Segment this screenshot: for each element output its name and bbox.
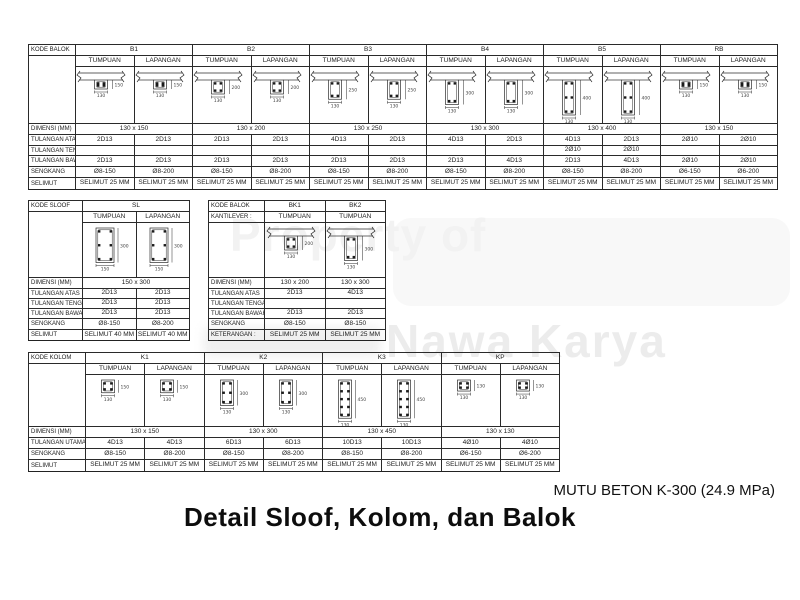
value-cell (265, 299, 326, 309)
dimensi-value: 130 x 150 (76, 124, 193, 135)
code-header: B1 (76, 45, 193, 56)
section-diagram-cell: 130150 (719, 67, 778, 124)
svg-text:200: 200 (232, 85, 241, 91)
svg-text:300: 300 (466, 90, 475, 96)
position-header: LAPANGAN (251, 56, 310, 67)
row-label: KETERANGAN : (209, 330, 265, 341)
position-header: TUMPUAN (323, 364, 382, 375)
value-cell: 4D13 (485, 156, 544, 167)
code-header: B4 (427, 45, 544, 56)
value-cell: 2D13 (134, 135, 193, 146)
value-cell: SELIMUT 40 MM (136, 330, 190, 341)
value-cell: SELIMUT 25 MM (134, 178, 193, 190)
svg-text:130: 130 (104, 396, 113, 402)
section-diagram-cell: 130130 (500, 375, 559, 427)
table-code-label: KODE KOLOM (29, 353, 86, 364)
mutu-beton-note: MUTU BETON K-300 (24.9 MPa) (554, 482, 775, 499)
value-cell: Ø6-150 (661, 167, 720, 178)
value-cell: Ø8-200 (485, 167, 544, 178)
svg-text:130: 130 (682, 93, 691, 99)
value-cell: 2D13 (485, 135, 544, 146)
value-cell: SELIMUT 25 MM (310, 178, 369, 190)
value-cell: SELIMUT 25 MM (323, 460, 382, 472)
value-cell (427, 146, 486, 156)
value-cell: Ø8-150 (544, 167, 603, 178)
row-label: TULANGAN BAWAH (29, 309, 83, 319)
dimensi-value: 130 x 130 (441, 427, 560, 438)
rect-section-diagram: 130450 (323, 376, 381, 426)
row-label: TULANGAN TENGAH (209, 299, 265, 309)
svg-text:300: 300 (120, 243, 129, 249)
svg-text:130: 130 (286, 254, 295, 260)
drawing-title: Detail Sloof, Kolom, dan Balok (0, 502, 760, 533)
position-header: TUMPUAN (204, 364, 263, 375)
section-diagram-cell: 130400 (602, 67, 661, 124)
value-cell (661, 146, 720, 156)
value-cell (134, 146, 193, 156)
position-header: LAPANGAN (136, 212, 190, 223)
svg-text:130: 130 (400, 422, 409, 426)
rect-section-diagram: 130130 (442, 376, 500, 426)
row-label: SENGKANG (209, 319, 265, 330)
empty-label-cell (29, 212, 83, 278)
position-header: TUMPUAN (441, 364, 500, 375)
position-header: TUMPUAN (427, 56, 486, 67)
value-cell: 2D13 (136, 309, 190, 319)
table-code-label: KODE SLOOF (29, 201, 83, 212)
section-diagram-cell: 130200 (193, 67, 252, 124)
rect-section-diagram: 130300 (264, 376, 322, 426)
svg-text:130: 130 (389, 103, 398, 109)
position-header: TUMPUAN (661, 56, 720, 67)
value-cell: SELIMUT 25 MM (602, 178, 661, 190)
row-label: TULANGAN BAWAH (209, 309, 265, 319)
value-cell: SELIMUT 25 MM (441, 460, 500, 472)
value-cell (310, 146, 369, 156)
value-cell: 4Ø10 (441, 438, 500, 449)
value-cell: SELIMUT 25 MM (368, 178, 427, 190)
code-header: SL (83, 201, 190, 212)
value-cell: 2D13 (544, 156, 603, 167)
value-cell: 4Ø10 (500, 438, 559, 449)
svg-text:300: 300 (174, 243, 183, 249)
row-label: SELIMUT (29, 460, 86, 472)
svg-text:130: 130 (222, 409, 231, 415)
svg-text:130: 130 (535, 383, 544, 389)
svg-text:300: 300 (239, 390, 248, 396)
svg-text:130: 130 (459, 395, 468, 401)
value-cell: SELIMUT 25 MM (544, 178, 603, 190)
dimensi-value: 130 x 300 (204, 427, 323, 438)
row-label: SENGKANG (29, 167, 76, 178)
position-header: TUMPUAN (83, 212, 137, 223)
row-label: TULANGAN BAWAH (29, 156, 76, 167)
dimensi-value: 130 x 250 (310, 124, 427, 135)
value-cell: 2Ø10 (661, 156, 720, 167)
svg-text:130: 130 (272, 98, 281, 104)
position-header: LAPANGAN (145, 364, 204, 375)
svg-text:150: 150 (758, 82, 767, 88)
beam-section-diagram: 130250 (310, 68, 368, 123)
value-cell: Ø6-200 (719, 167, 778, 178)
value-cell: 4D13 (427, 135, 486, 146)
section-diagram-cell: 150300 (136, 223, 190, 278)
beam-section-diagram: 130300 (326, 224, 384, 277)
value-cell: SELIMUT 25 MM (86, 460, 145, 472)
section-diagram-cell: 130200 (265, 223, 326, 278)
rect-section-diagram: 150300 (83, 224, 136, 277)
svg-text:130: 130 (740, 93, 749, 99)
rect-section-diagram: 150300 (137, 224, 190, 277)
value-cell: 4D13 (602, 156, 661, 167)
value-cell: Ø8-150 (427, 167, 486, 178)
table-code-label: KODE BALOK (209, 201, 265, 212)
value-cell: SELIMUT 25 MM (265, 330, 326, 341)
sloof-grid: KODE SLOOFSLTUMPUANLAPANGAN150300150300D… (28, 200, 190, 341)
value-cell: 2D13 (265, 289, 326, 299)
value-cell: SELIMUT 25 MM (661, 178, 720, 190)
value-cell: 10D13 (323, 438, 382, 449)
beam-section-diagram: 130150 (135, 68, 193, 123)
value-cell: 10D13 (382, 438, 441, 449)
value-cell: Ø8-200 (602, 167, 661, 178)
dimensi-value: 130 x 200 (193, 124, 310, 135)
beam-section-diagram: 130400 (544, 68, 602, 123)
section-diagram-cell: 130130 (441, 375, 500, 427)
code-header: B2 (193, 45, 310, 56)
value-cell: Ø8-200 (134, 167, 193, 178)
svg-text:200: 200 (304, 241, 313, 247)
code-header: B5 (544, 45, 661, 56)
beam-section-diagram: 130200 (266, 224, 324, 277)
position-header: LAPANGAN (382, 364, 441, 375)
value-cell: 2D13 (265, 309, 326, 319)
svg-text:250: 250 (407, 87, 416, 93)
value-cell: Ø8-150 (193, 167, 252, 178)
value-cell: Ø8-200 (251, 167, 310, 178)
value-cell: 2D13 (251, 156, 310, 167)
section-diagram-cell: 130250 (368, 67, 427, 124)
section-diagram-cell: 130300 (325, 223, 386, 278)
svg-text:400: 400 (583, 95, 592, 101)
dimensi-value: 130 x 300 (427, 124, 544, 135)
row-label: SELIMUT (29, 330, 83, 341)
row-label: TULANGAN ATAS (29, 289, 83, 299)
value-cell: SELIMUT 25 MM (76, 178, 135, 190)
svg-text:130: 130 (623, 119, 632, 123)
svg-text:130: 130 (448, 108, 457, 114)
svg-text:130: 130 (282, 409, 291, 415)
table-code-label: KODE BALOK (29, 45, 76, 56)
section-diagram-cell: 130150 (145, 375, 204, 427)
sloof-table: KODE SLOOFSLTUMPUANLAPANGAN150300150300D… (28, 200, 190, 340)
dimensi-label: DIMENSI (MM) (29, 278, 83, 289)
svg-text:150: 150 (180, 384, 189, 390)
table-code-sublabel: KANTILEVER : (209, 212, 265, 223)
value-cell: Ø8-150 (310, 167, 369, 178)
position-header: TUMPUAN (193, 56, 252, 67)
value-cell: 2D13 (76, 135, 135, 146)
rect-section-diagram: 130450 (382, 376, 440, 426)
position-header: LAPANGAN (485, 56, 544, 67)
value-cell: 2Ø10 (719, 135, 778, 146)
dimensi-value: 130 x 300 (325, 278, 386, 289)
value-cell: Ø8-200 (368, 167, 427, 178)
section-diagram-cell: 130300 (485, 67, 544, 124)
dimensi-label: DIMENSI (MM) (29, 427, 86, 438)
row-label: TULANGAN UTAMA (29, 438, 86, 449)
svg-text:130: 130 (97, 93, 106, 99)
beam-section-diagram: 130150 (76, 68, 134, 123)
value-cell: SELIMUT 25 MM (325, 330, 386, 341)
dimensi-label: DIMENSI (MM) (29, 124, 76, 135)
svg-text:150: 150 (101, 266, 110, 272)
value-cell: 2Ø10 (544, 146, 603, 156)
value-cell (251, 146, 310, 156)
section-diagram-cell: 130150 (661, 67, 720, 124)
svg-text:450: 450 (417, 397, 426, 403)
position-header: TUMPUAN (544, 56, 603, 67)
value-cell: 2D13 (76, 156, 135, 167)
dimensi-value: 130 x 150 (86, 427, 205, 438)
kolom-table: KODE KOLOMK1K2K3KPTUMPUANLAPANGANTUMPUAN… (28, 352, 560, 471)
beam-section-diagram: 130200 (193, 68, 251, 123)
beam-section-diagram: 130300 (427, 68, 485, 123)
code-header: BK1 (265, 201, 326, 212)
value-cell: Ø8-150 (204, 449, 263, 460)
value-cell: 2D13 (134, 156, 193, 167)
dimensi-value: 130 x 400 (544, 124, 661, 135)
value-cell: SELIMUT 40 MM (83, 330, 137, 341)
value-cell: 4D13 (310, 135, 369, 146)
dimensi-value: 130 x 450 (323, 427, 442, 438)
position-header: TUMPUAN (86, 364, 145, 375)
value-cell: Ø8-150 (76, 167, 135, 178)
value-cell: 4D13 (544, 135, 603, 146)
rect-section-diagram: 130130 (501, 376, 559, 426)
beam-section-diagram: 130300 (486, 68, 544, 123)
value-cell: 2Ø10 (661, 135, 720, 146)
empty-label-cell (209, 223, 265, 278)
rect-section-diagram: 130150 (86, 376, 144, 426)
value-cell: 4D13 (145, 438, 204, 449)
section-diagram-cell: 130250 (310, 67, 369, 124)
svg-text:400: 400 (641, 95, 650, 101)
section-diagram-cell: 130450 (382, 375, 441, 427)
code-header: KP (441, 353, 560, 364)
row-label: TULANGAN ATAS (29, 135, 76, 146)
rect-section-diagram: 130300 (205, 376, 263, 426)
value-cell: Ø8-200 (263, 449, 322, 460)
dimensi-value: 130 x 150 (661, 124, 778, 135)
value-cell: 2D13 (325, 309, 386, 319)
code-header: BK2 (325, 201, 386, 212)
kantilever-grid: KODE BALOKBK1BK2KANTILEVER :TUMPUANTUMPU… (208, 200, 386, 341)
value-cell: 2D13 (310, 156, 369, 167)
position-header: LAPANGAN (368, 56, 427, 67)
value-cell (325, 299, 386, 309)
svg-text:300: 300 (298, 390, 307, 396)
dimensi-value: 130 x 200 (265, 278, 326, 289)
position-header: TUMPUAN (76, 56, 135, 67)
section-diagram-cell: 130300 (263, 375, 322, 427)
value-cell: Ø6-150 (441, 449, 500, 460)
svg-text:300: 300 (365, 246, 374, 252)
dimensi-value: 150 x 300 (83, 278, 190, 289)
section-diagram-cell: 130300 (204, 375, 263, 427)
value-cell: 2D13 (193, 135, 252, 146)
svg-text:150: 150 (700, 82, 709, 88)
svg-text:250: 250 (349, 87, 358, 93)
svg-text:130: 130 (341, 422, 350, 426)
beam-section-diagram: 130200 (252, 68, 310, 123)
value-cell: Ø8-150 (83, 319, 137, 330)
value-cell: 2D13 (83, 289, 137, 299)
position-header: TUMPUAN (265, 212, 326, 223)
svg-text:150: 150 (173, 82, 182, 88)
svg-text:130: 130 (476, 383, 485, 389)
svg-text:130: 130 (565, 119, 574, 123)
value-cell: 2D13 (368, 156, 427, 167)
value-cell (76, 146, 135, 156)
value-cell (193, 146, 252, 156)
section-diagram-cell: 130200 (251, 67, 310, 124)
balok-table: KODE BALOKB1B2B3B4B5RBTUMPUANLAPANGANTUM… (28, 44, 778, 189)
value-cell: 2D13 (368, 135, 427, 146)
svg-text:200: 200 (290, 85, 299, 91)
row-label: TULANGAN ATAS (209, 289, 265, 299)
value-cell: 2Ø10 (602, 146, 661, 156)
beam-section-diagram: 130250 (369, 68, 427, 123)
value-cell: Ø8-200 (145, 449, 204, 460)
value-cell: 2D13 (83, 299, 137, 309)
code-header: B3 (310, 45, 427, 56)
rect-section-diagram: 130150 (145, 376, 203, 426)
value-cell: 2D13 (251, 135, 310, 146)
section-diagram-cell: 130150 (134, 67, 193, 124)
code-header: K2 (204, 353, 323, 364)
value-cell: SELIMUT 25 MM (251, 178, 310, 190)
position-header: TUMPUAN (325, 212, 386, 223)
value-cell: 2D13 (427, 156, 486, 167)
svg-text:130: 130 (519, 395, 528, 401)
value-cell: 2D13 (136, 289, 190, 299)
value-cell: SELIMUT 25 MM (204, 460, 263, 472)
value-cell (368, 146, 427, 156)
value-cell: Ø8-200 (382, 449, 441, 460)
kantilever-table: KODE BALOKBK1BK2KANTILEVER :TUMPUANTUMPU… (208, 200, 386, 340)
section-diagram-cell: 130300 (427, 67, 486, 124)
position-header: LAPANGAN (134, 56, 193, 67)
section-diagram-cell: 130150 (86, 375, 145, 427)
svg-text:150: 150 (115, 82, 124, 88)
value-cell: Ø6-200 (500, 449, 559, 460)
section-diagram-cell: 130450 (323, 375, 382, 427)
value-cell: 6D13 (263, 438, 322, 449)
value-cell: Ø8-150 (265, 319, 326, 330)
empty-label-cell (29, 56, 76, 124)
value-cell: 6D13 (204, 438, 263, 449)
svg-text:150: 150 (154, 266, 163, 272)
position-header: LAPANGAN (719, 56, 778, 67)
svg-text:450: 450 (358, 397, 367, 403)
value-cell (485, 146, 544, 156)
svg-text:130: 130 (506, 108, 515, 114)
code-header: K1 (86, 353, 205, 364)
drawing-sheet: Property of Nawa Karya KODE BALOKB1B2B3B… (0, 0, 800, 600)
value-cell: 2D13 (193, 156, 252, 167)
value-cell: Ø8-150 (323, 449, 382, 460)
position-header: TUMPUAN (310, 56, 369, 67)
row-label: TULANGAN TENGAH (29, 299, 83, 309)
code-header: RB (661, 45, 778, 56)
beam-section-diagram: 130150 (720, 68, 778, 123)
row-label: SELIMUT (29, 178, 76, 190)
value-cell: SELIMUT 25 MM (719, 178, 778, 190)
row-label: TULANGAN TENGAH (29, 146, 76, 156)
row-label: SENGKANG (29, 449, 86, 460)
value-cell: 2D13 (602, 135, 661, 146)
svg-text:130: 130 (331, 103, 340, 109)
value-cell: 2Ø10 (719, 156, 778, 167)
empty-label-cell (29, 364, 86, 427)
svg-text:130: 130 (163, 396, 172, 402)
row-label: SENGKANG (29, 319, 83, 330)
balok-grid: KODE BALOKB1B2B3B4B5RBTUMPUANLAPANGANTUM… (28, 44, 778, 190)
value-cell: SELIMUT 25 MM (145, 460, 204, 472)
svg-text:130: 130 (347, 264, 356, 270)
svg-text:130: 130 (214, 98, 223, 104)
value-cell: 2D13 (83, 309, 137, 319)
value-cell: 2D13 (136, 299, 190, 309)
position-header: LAPANGAN (500, 364, 559, 375)
svg-text:150: 150 (121, 384, 130, 390)
value-cell: SELIMUT 25 MM (193, 178, 252, 190)
value-cell: SELIMUT 25 MM (427, 178, 486, 190)
value-cell: Ø8-150 (325, 319, 386, 330)
section-diagram-cell: 130150 (76, 67, 135, 124)
code-header: K3 (323, 353, 442, 364)
section-diagram-cell: 150300 (83, 223, 137, 278)
value-cell: SELIMUT 25 MM (485, 178, 544, 190)
position-header: LAPANGAN (263, 364, 322, 375)
value-cell: 4D13 (325, 289, 386, 299)
value-cell: 4D13 (86, 438, 145, 449)
value-cell: Ø8-150 (86, 449, 145, 460)
value-cell: SELIMUT 25 MM (500, 460, 559, 472)
kolom-grid: KODE KOLOMK1K2K3KPTUMPUANLAPANGANTUMPUAN… (28, 352, 560, 472)
beam-section-diagram: 130150 (661, 68, 719, 123)
value-cell: Ø8-200 (136, 319, 190, 330)
position-header: LAPANGAN (602, 56, 661, 67)
svg-text:130: 130 (155, 93, 164, 99)
value-cell (719, 146, 778, 156)
value-cell: SELIMUT 25 MM (263, 460, 322, 472)
svg-text:300: 300 (524, 90, 533, 96)
value-cell: SELIMUT 25 MM (382, 460, 441, 472)
beam-section-diagram: 130400 (603, 68, 661, 123)
section-diagram-cell: 130400 (544, 67, 603, 124)
dimensi-label: DIMENSI (MM) (209, 278, 265, 289)
